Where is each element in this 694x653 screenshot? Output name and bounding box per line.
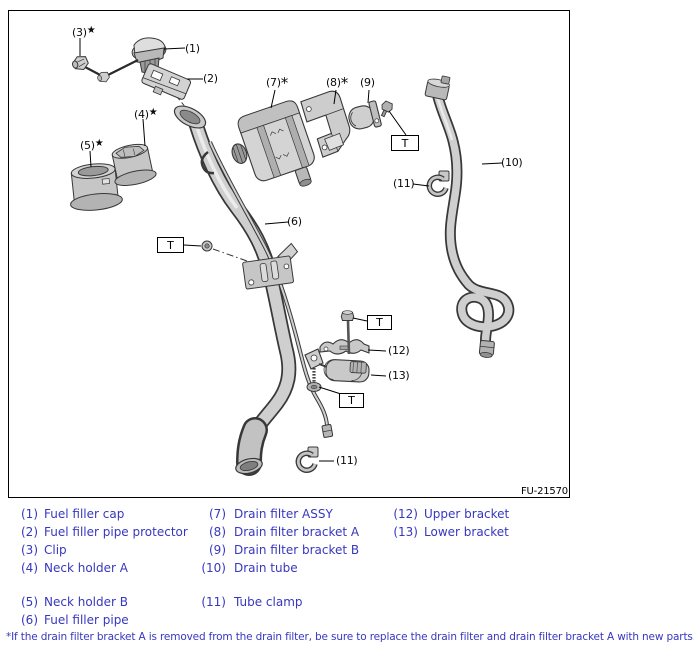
- star-icon: ★: [149, 107, 158, 118]
- legend-item-number: (6): [12, 613, 38, 628]
- legend-item-label: Tube clamp: [234, 595, 303, 610]
- asterisk-icon: *: [281, 74, 288, 92]
- torque-box: T: [367, 315, 392, 330]
- legend-item-label: Fuel filler pipe protector: [44, 525, 188, 540]
- legend-item: (12)Upper bracket: [386, 507, 509, 522]
- legend-item-label: Drain tube: [234, 561, 298, 576]
- torque-box: T: [391, 135, 419, 151]
- callout-11: (11): [336, 454, 357, 467]
- drain-tube-drawing: [425, 73, 509, 358]
- legend-item-number: (8): [196, 525, 226, 540]
- legend-item: (4)Neck holder A: [12, 561, 128, 576]
- torque-box: T: [339, 393, 364, 408]
- figure-code: FU-21570: [521, 486, 568, 497]
- legend-item: (9)Drain filter bracket B: [196, 543, 359, 558]
- legend-item: (11)Tube clamp: [196, 595, 303, 610]
- legend-item-number: (5): [12, 595, 38, 610]
- upper-bracket-drawing: [320, 340, 369, 354]
- torque-box: T: [157, 237, 184, 253]
- bolt-small-drawing: [378, 100, 394, 118]
- callout-5: (5)★: [80, 138, 103, 152]
- callout-8: (8)*: [326, 76, 348, 89]
- legend-item: (3)Clip: [12, 543, 67, 558]
- footnote: *If the drain filter bracket A is remove…: [6, 631, 694, 643]
- legend-item-label: Fuel filler pipe: [44, 613, 129, 628]
- legend-item-label: Lower bracket: [424, 525, 509, 540]
- manual-page: (3)★ (1) (2) (4)★ (5)★ (7)* (8)* (9) (10…: [0, 0, 694, 653]
- legend-item-number: (3): [12, 543, 38, 558]
- callout-2: (2): [203, 72, 218, 85]
- star-icon: ★: [95, 138, 104, 149]
- legend-item: (5)Neck holder B: [12, 595, 128, 610]
- legend-item-number: (1): [12, 507, 38, 522]
- callout-1: (1): [185, 42, 200, 55]
- callout-13: (13): [388, 369, 409, 382]
- legend-item-label: Drain filter ASSY: [234, 507, 333, 522]
- legend-item-number: (13): [386, 525, 418, 540]
- callout-11: (11): [393, 177, 414, 190]
- legend-item: (6)Fuel filler pipe: [12, 613, 129, 628]
- legend-item-label: Neck holder A: [44, 561, 128, 576]
- legend-item-label: Drain filter bracket B: [234, 543, 359, 558]
- legend-item-label: Upper bracket: [424, 507, 509, 522]
- drain-filter-bracket-b-drawing: [346, 101, 381, 133]
- fuel-filler-pipe-protector-drawing: [139, 63, 191, 104]
- nut-drawing: [202, 241, 247, 261]
- callout-6: (6): [287, 215, 302, 228]
- legend-item-label: Neck holder B: [44, 595, 128, 610]
- tube-clamp-drawing: [298, 447, 318, 470]
- legend-item: (8)Drain filter bracket A: [196, 525, 359, 540]
- legend-item-number: (12): [386, 507, 418, 522]
- star-icon: ★: [87, 25, 96, 36]
- legend-item-number: (10): [196, 561, 226, 576]
- legend-item-label: Clip: [44, 543, 67, 558]
- asterisk-icon: *: [341, 74, 348, 92]
- legend-item-number: (11): [196, 595, 226, 610]
- callout-10: (10): [501, 156, 522, 169]
- callout-12: (12): [388, 344, 409, 357]
- pipe-bracket-drawing: [241, 243, 302, 289]
- legend-item-number: (9): [196, 543, 226, 558]
- callout-9: (9): [360, 76, 375, 89]
- neck-holder-b-drawing: [67, 161, 124, 212]
- legend-item: (2)Fuel filler pipe protector: [12, 525, 188, 540]
- legend-item-number: (2): [12, 525, 38, 540]
- legend-item-number: (4): [12, 561, 38, 576]
- callout-4: (4)★: [134, 107, 157, 121]
- legend-item-label: Fuel filler cap: [44, 507, 124, 522]
- legend-item: (7)Drain filter ASSY: [196, 507, 333, 522]
- legend-item: (10)Drain tube: [196, 561, 298, 576]
- legend-item-label: Drain filter bracket A: [234, 525, 359, 540]
- legend-item: (13)Lower bracket: [386, 525, 509, 540]
- callout-7: (7)*: [266, 76, 288, 89]
- clip-drawing: [71, 54, 138, 83]
- legend-item: (1)Fuel filler cap: [12, 507, 124, 522]
- legend-item-number: (7): [196, 507, 226, 522]
- callout-3: (3)★: [72, 25, 95, 39]
- neck-holder-a-drawing: [108, 141, 157, 188]
- tube-clamp-drawing: [429, 171, 449, 194]
